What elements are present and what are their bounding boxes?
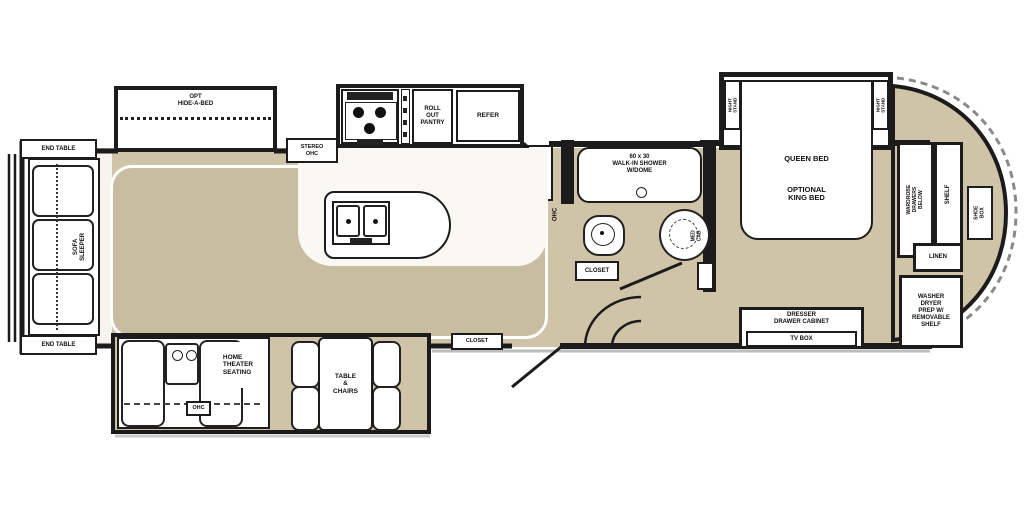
washer-dryer-prep: WASHER DRYER PREP W/ REMOVABLE SHELF [899, 275, 963, 348]
hide-a-bed-fold-line [120, 117, 271, 120]
sofa-sleeper: SOFA SLEEPER [28, 158, 100, 336]
theater-console [165, 343, 199, 385]
tv-box: TV BOX [746, 331, 857, 347]
washer-dryer-label: WASHER DRYER PREP W/ REMOVABLE SHELF [912, 294, 950, 328]
wardrobe: WARDROBE DRAWERS BELOW [897, 142, 934, 258]
night-stand-right: NIGHT STAND [872, 80, 889, 130]
shoe-box: SHOE BOX [967, 186, 993, 240]
burner [364, 123, 375, 134]
hide-a-bed-label: OPT HIDE-A-BED [178, 94, 213, 108]
microwave-strip [401, 89, 410, 144]
stereo-ohc-cabinet: STEREO OHC [286, 138, 338, 163]
end-table-top: END TABLE [20, 139, 97, 159]
shoe-box-label: SHOE BOX [974, 202, 986, 224]
refrigerator: REFER [456, 90, 520, 142]
dinette-chair [291, 341, 320, 388]
recliner-left [121, 340, 165, 427]
dinette-chair [372, 386, 401, 431]
night-stand-left: NIGHT STAND [724, 80, 741, 130]
rv-floorplan: END TABLE SOFA SLEEPER END TABLE OPT HID… [0, 0, 1024, 512]
theater-ohc: OHC [186, 401, 211, 416]
walk-in-shower: 60 x 30 WALK-IN SHOWER W/DOME [577, 147, 702, 203]
kitchen-ohc-wrap: OHC [548, 196, 564, 232]
range-stove [341, 89, 399, 144]
stereo-ohc-label: STEREO OHC [301, 144, 324, 157]
kitchen-ohc-label: OHC [553, 206, 560, 222]
shower-label: 60 x 30 WALK-IN SHOWER W/DOME [612, 154, 666, 175]
dinette-table: TABLE & CHAIRS [318, 337, 373, 431]
shower-dome [636, 187, 647, 198]
roll-out-pantry-label: ROLL OUT PANTRY [421, 106, 445, 127]
bath-closet-label: CLOSET [585, 268, 609, 275]
sofa-sleeper-label: SOFA SLEEPER [73, 227, 87, 267]
refer-label: REFER [477, 112, 499, 119]
sofa-sleeper-label-wrap: SOFA SLEEPER [60, 222, 100, 272]
island-sink-unit [332, 201, 390, 245]
shelf-label: SHELF [945, 182, 952, 205]
entry-closet-label: CLOSET [466, 338, 488, 344]
bath-closet: CLOSET [575, 261, 619, 281]
night-stand-left-label: NIGHT STAND [727, 97, 737, 112]
burner [353, 107, 364, 118]
bed: QUEEN BED OPTIONAL KING BED [740, 80, 873, 240]
night-stand-right-label: NIGHT STAND [875, 97, 885, 112]
bath-vanity-base [697, 262, 714, 290]
toilet [583, 215, 625, 256]
entry-closet: CLOSET [451, 333, 503, 350]
wardrobe-label: WARDROBE DRAWERS BELOW [907, 185, 924, 216]
cupholder [172, 350, 183, 361]
home-theater-label: HOME THEATER SEATING [223, 354, 253, 376]
home-theater-label-wrap: HOME THEATER SEATING [210, 342, 266, 388]
table-chairs-label: TABLE & CHAIRS [333, 373, 358, 395]
optional-king-bed-label: OPTIONAL KING BED [787, 186, 826, 203]
tv-box-label: TV BOX [790, 336, 812, 343]
dresser-label: DRESSER DRAWER CABINET [774, 312, 829, 326]
queen-bed-label: QUEEN BED [784, 155, 829, 164]
roll-out-pantry: ROLL OUT PANTRY [412, 89, 453, 144]
cupholder [186, 350, 197, 361]
end-table-bottom-label: END TABLE [42, 342, 76, 349]
end-table-bottom: END TABLE [20, 335, 97, 355]
end-table-top-label: END TABLE [42, 146, 76, 153]
dinette-chair [372, 341, 401, 388]
med-cab-label: MED CAB [691, 230, 703, 242]
shelf: SHELF [934, 142, 963, 246]
linen-cabinet: LINEN [913, 243, 963, 272]
dinette-chair [291, 386, 320, 431]
burner [375, 107, 386, 118]
med-cab-wrap: MED CAB [691, 214, 703, 258]
linen-label: LINEN [929, 254, 947, 261]
theater-ohc-label: OHC [192, 405, 204, 411]
